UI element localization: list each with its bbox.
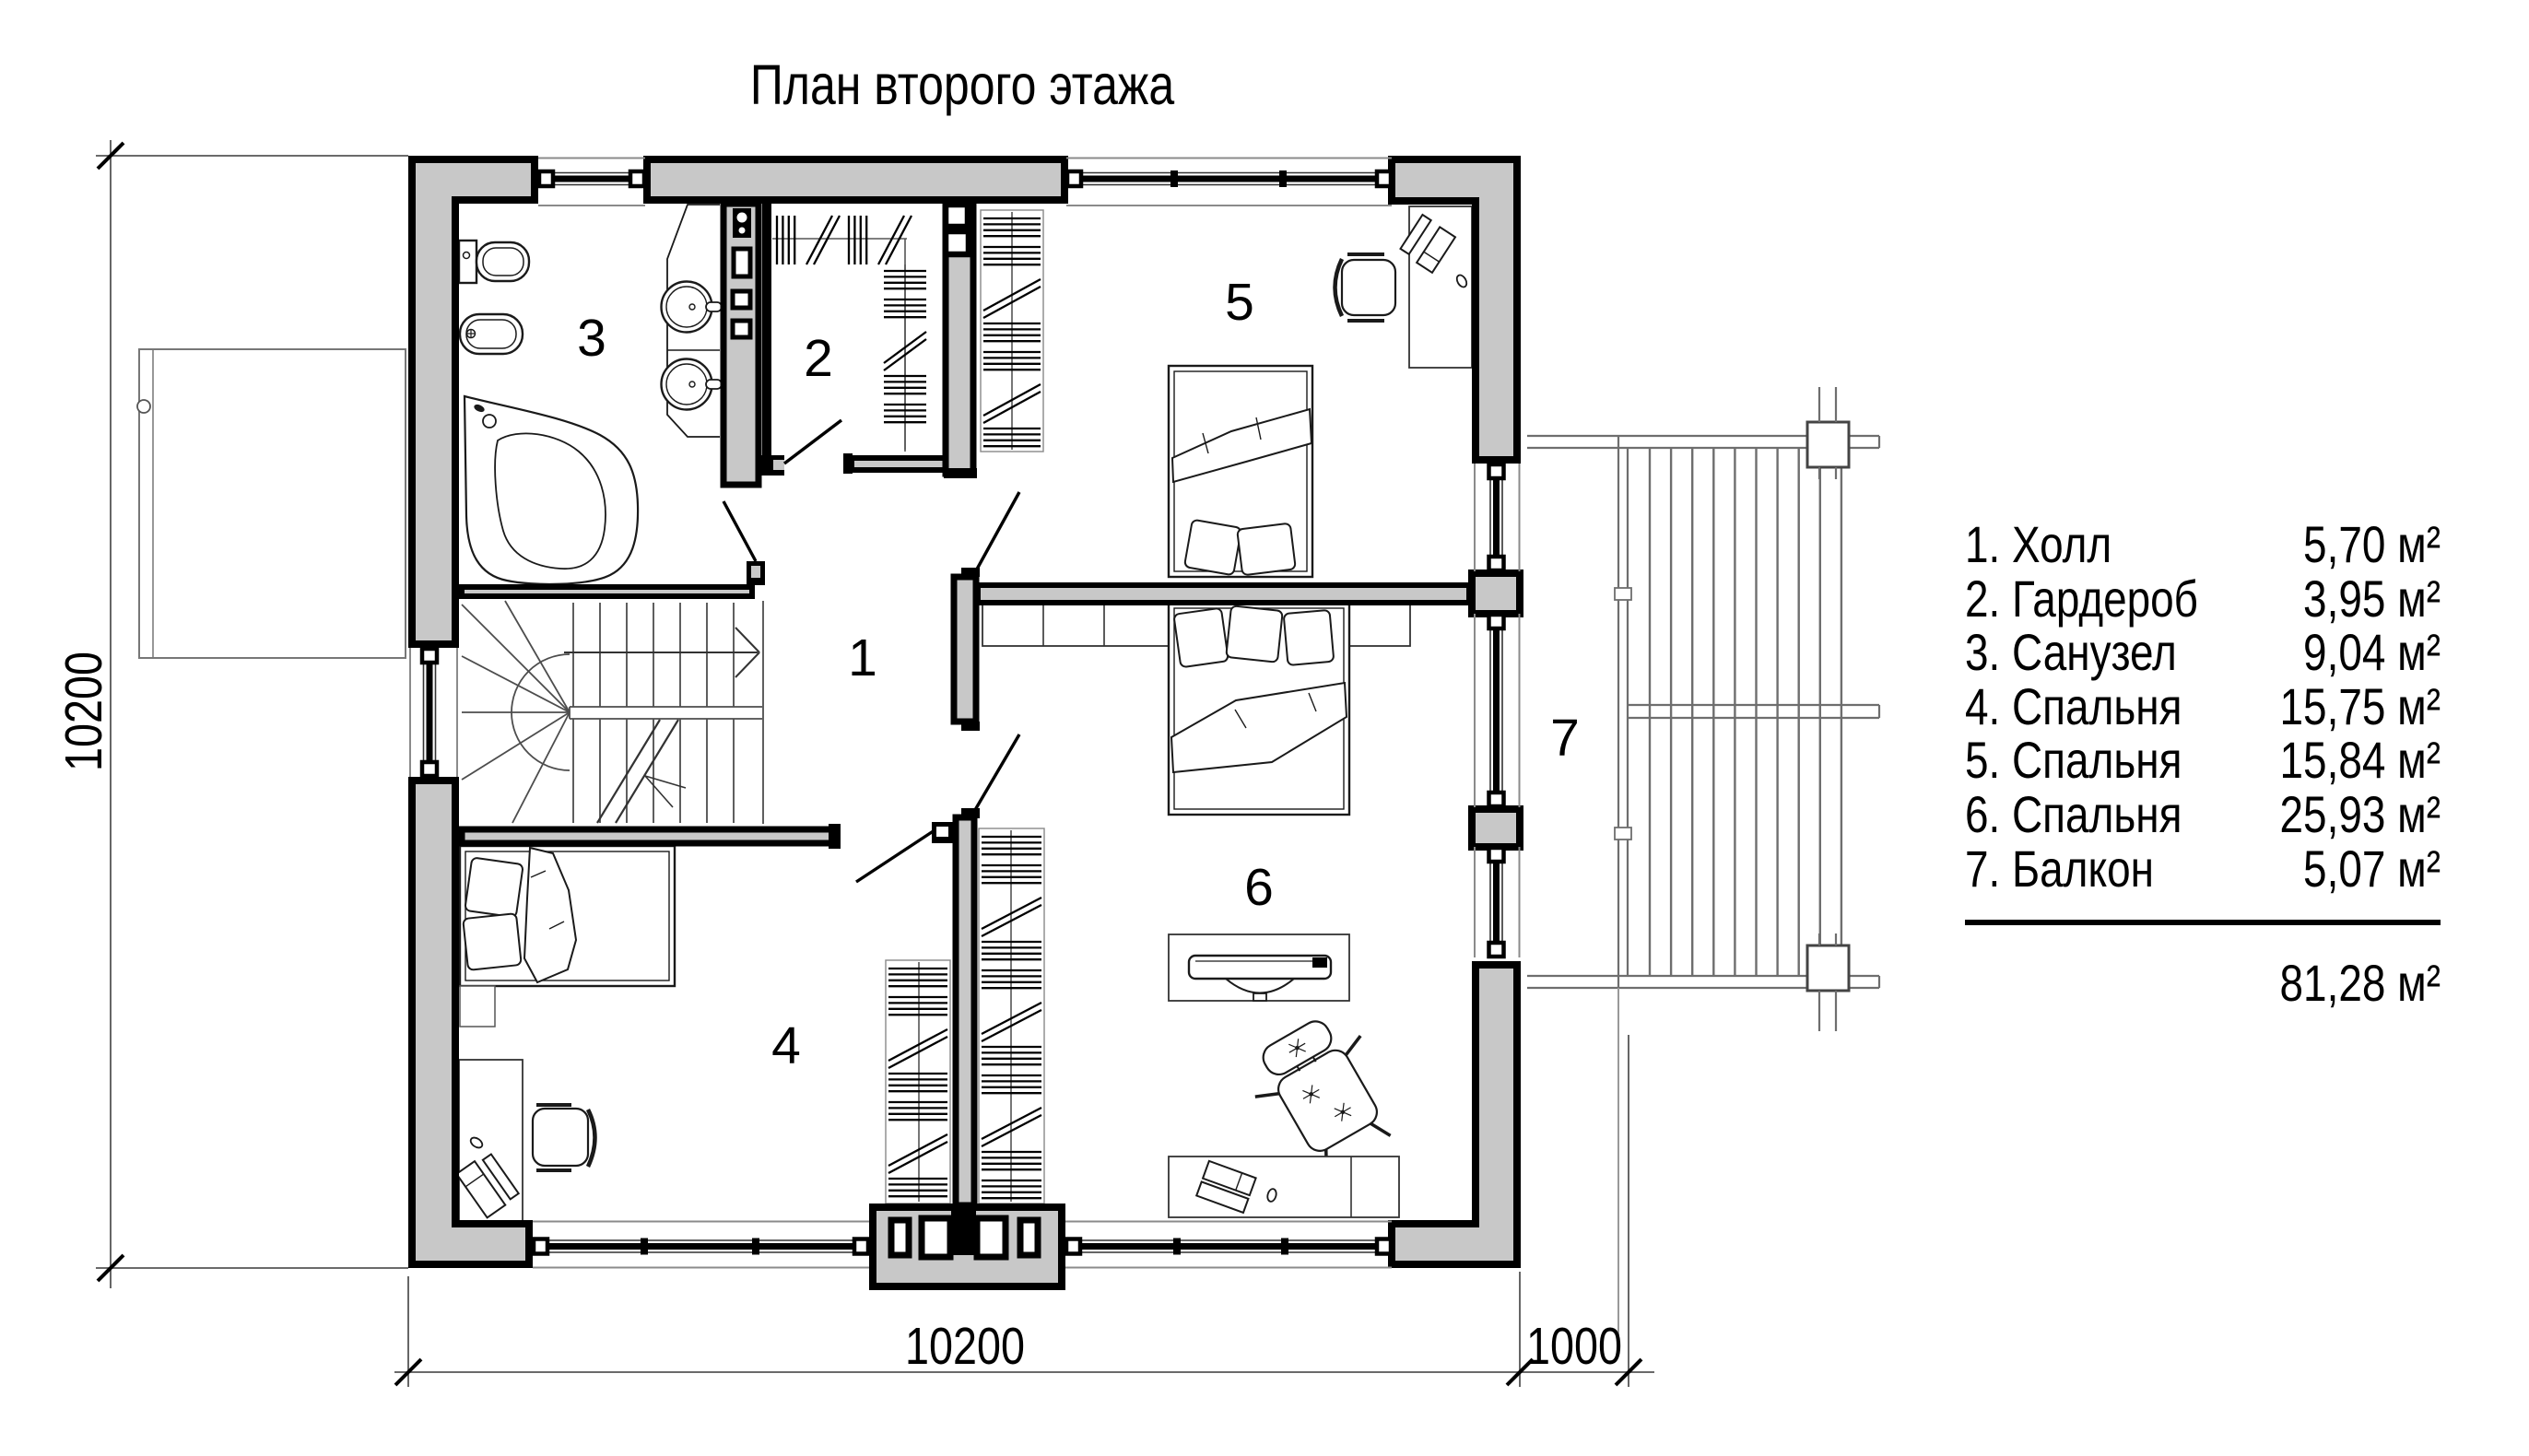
svg-text:6: 6	[1244, 858, 1274, 917]
svg-text:3. Санузел: 3. Санузел	[1965, 624, 2177, 681]
svg-text:5,07 м²: 5,07 м²	[2303, 840, 2441, 898]
svg-text:15,75 м²: 15,75 м²	[2280, 678, 2441, 735]
svg-text:7. Балкон: 7. Балкон	[1965, 840, 2154, 898]
svg-text:5. Спальня: 5. Спальня	[1965, 732, 2182, 789]
svg-text:4: 4	[771, 1016, 801, 1075]
svg-text:10200: 10200	[55, 652, 113, 771]
svg-text:7: 7	[1550, 709, 1580, 768]
svg-text:2. Гардероб: 2. Гардероб	[1965, 570, 2198, 628]
svg-text:3: 3	[577, 309, 606, 368]
svg-text:81,28 м²: 81,28 м²	[2280, 955, 2441, 1012]
svg-text:6. Спальня: 6. Спальня	[1965, 786, 2182, 843]
svg-text:3,95 м²: 3,95 м²	[2303, 570, 2441, 628]
svg-text:10200: 10200	[905, 1318, 1025, 1376]
svg-text:4. Спальня: 4. Спальня	[1965, 678, 2182, 735]
svg-text:5,70 м²: 5,70 м²	[2303, 516, 2441, 573]
svg-text:1: 1	[848, 628, 877, 687]
svg-text:15,84 м²: 15,84 м²	[2280, 732, 2441, 789]
svg-text:1. Холл: 1. Холл	[1965, 516, 2111, 573]
svg-text:5: 5	[1225, 273, 1254, 332]
svg-text:1000: 1000	[1526, 1318, 1622, 1376]
svg-text:25,93 м²: 25,93 м²	[2280, 786, 2441, 843]
svg-text:9,04 м²: 9,04 м²	[2303, 624, 2441, 681]
svg-text:План второго этажа: План второго этажа	[750, 53, 1175, 116]
svg-text:2: 2	[804, 329, 833, 388]
